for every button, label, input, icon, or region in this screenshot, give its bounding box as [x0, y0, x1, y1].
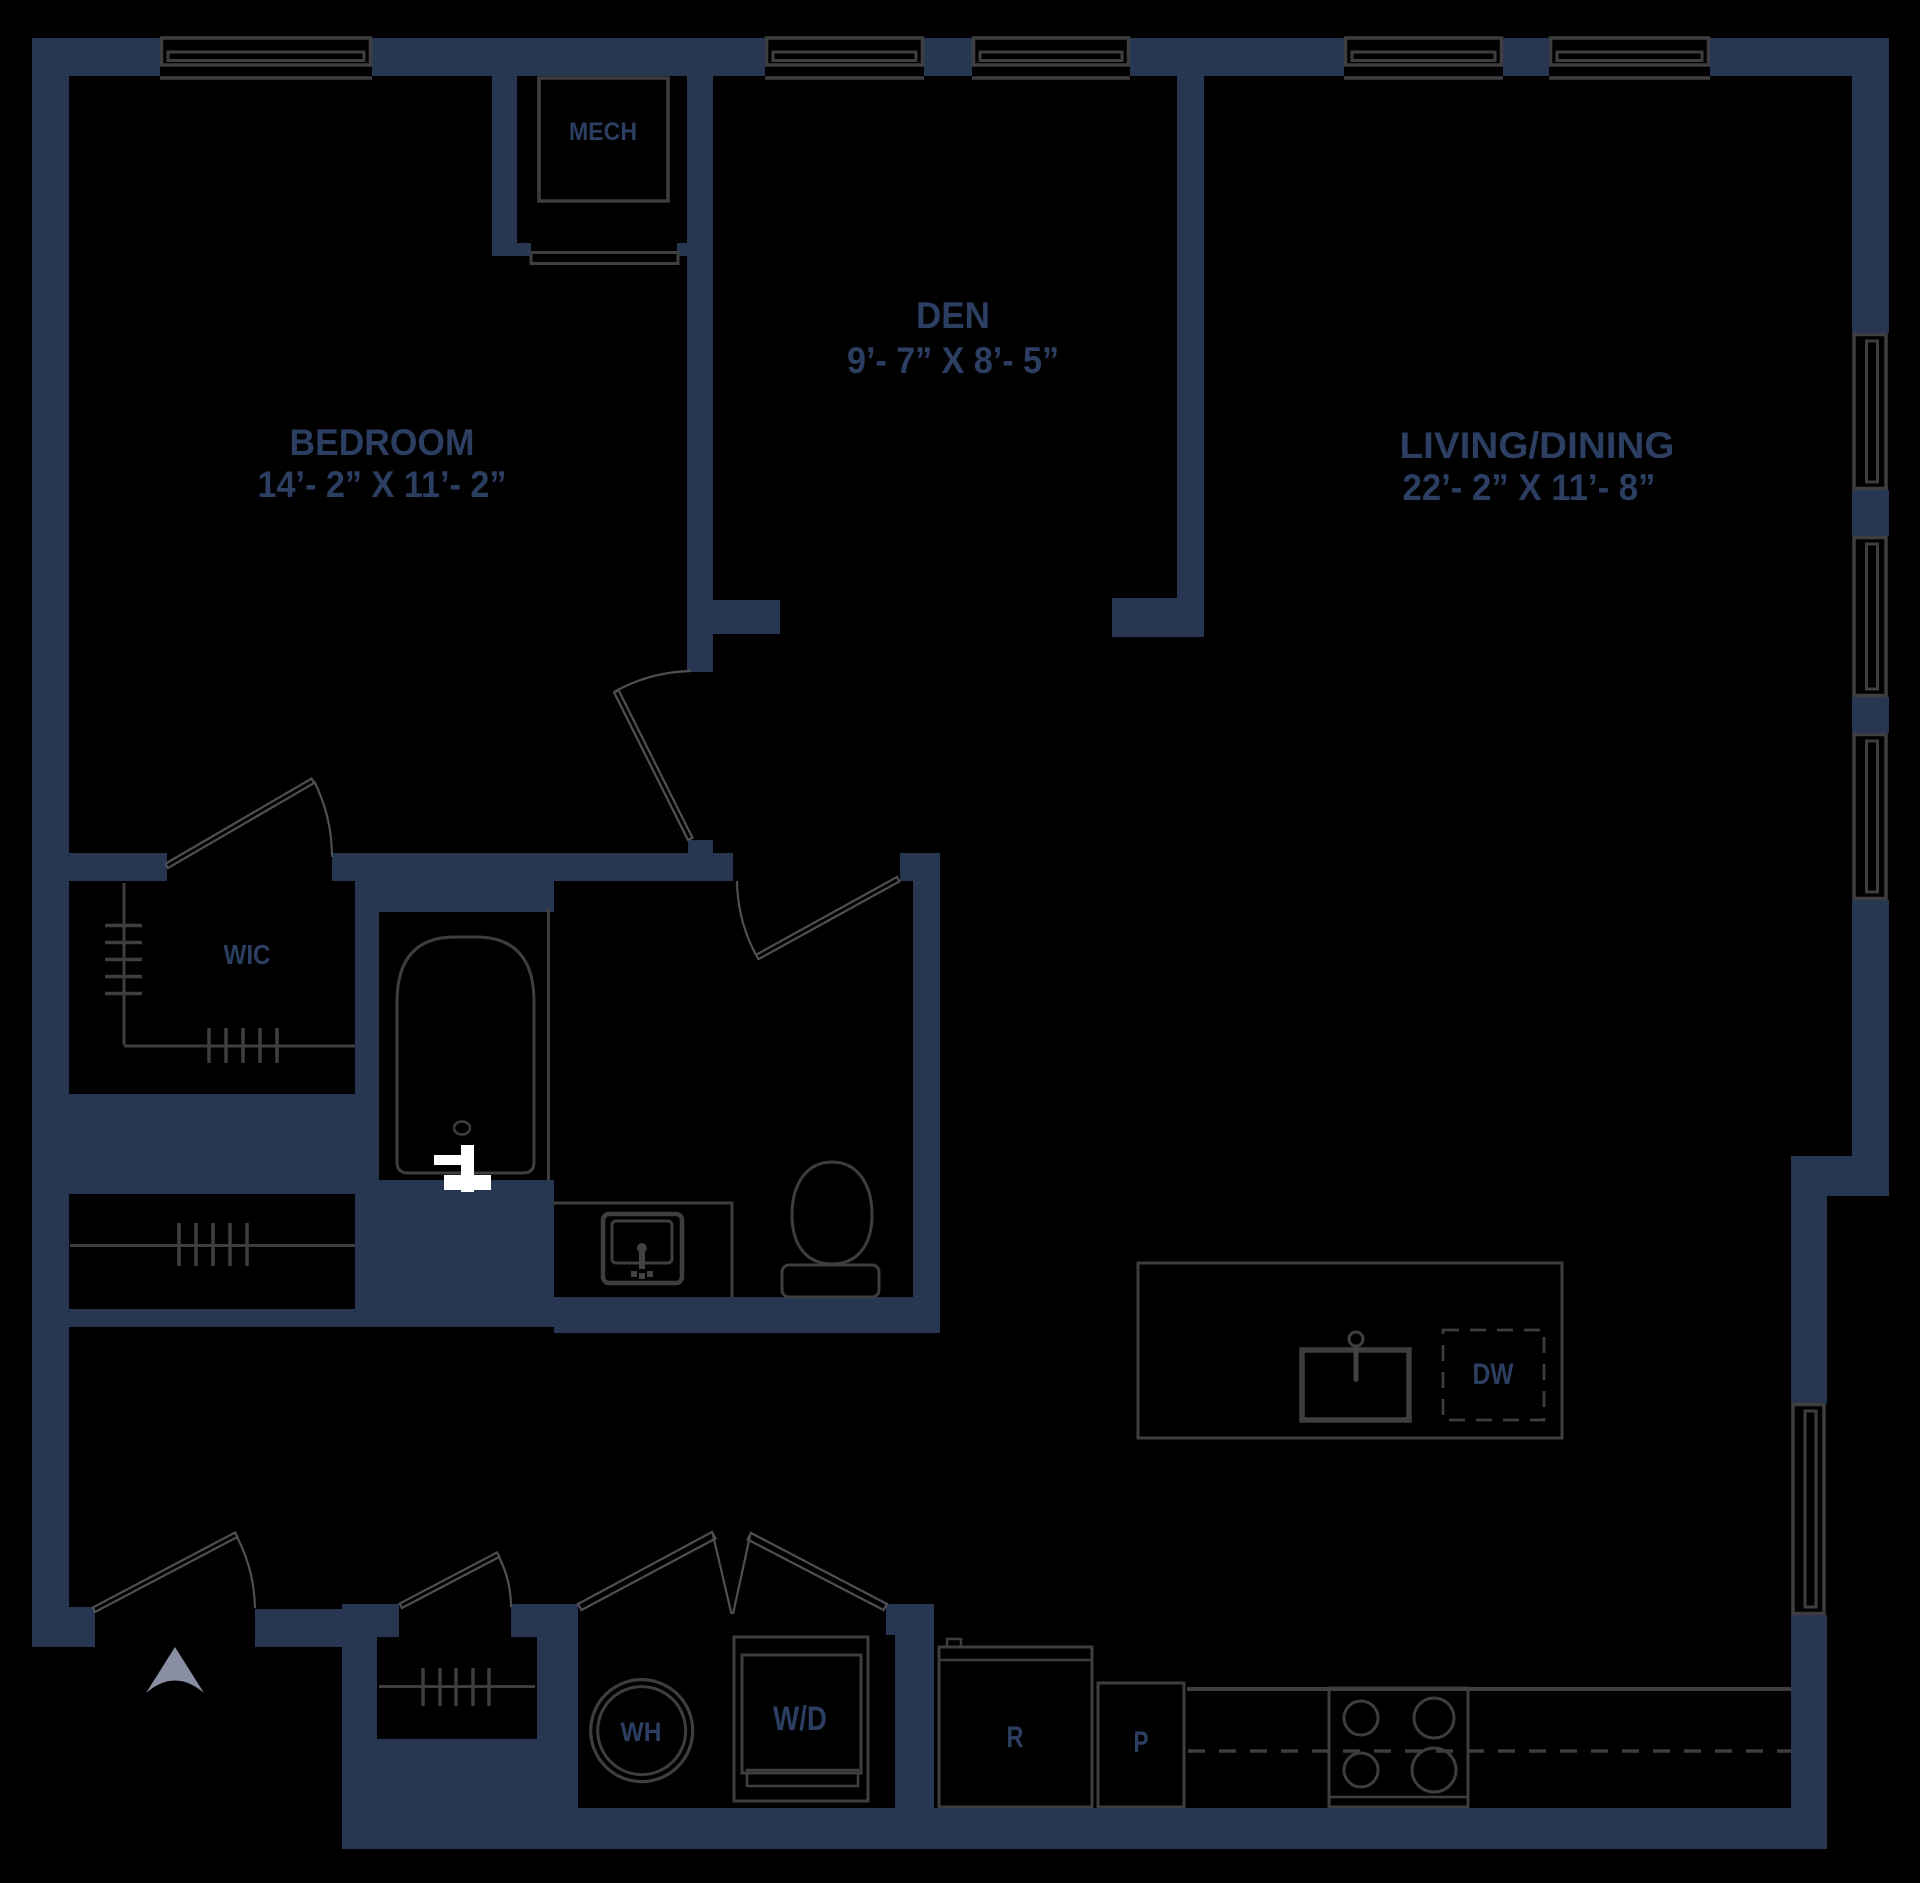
svg-text:MECH: MECH	[569, 118, 637, 146]
svg-text:WH: WH	[621, 1717, 662, 1747]
svg-text:14’- 2” X 11’- 2”: 14’- 2” X 11’- 2”	[258, 464, 507, 505]
svg-text:P: P	[1134, 1726, 1149, 1759]
svg-text:BEDROOM: BEDROOM	[290, 422, 475, 463]
svg-text:DEN: DEN	[916, 295, 990, 336]
svg-text:W/D: W/D	[773, 1700, 827, 1738]
svg-text:R: R	[1007, 1721, 1024, 1754]
svg-text:WIC: WIC	[224, 939, 271, 970]
svg-text:DW: DW	[1473, 1358, 1515, 1391]
svg-text:LIVING/DINING: LIVING/DINING	[1400, 425, 1675, 466]
svg-text:22’- 2” X 11’- 8”: 22’- 2” X 11’- 8”	[1403, 467, 1656, 508]
svg-text:9’- 7” X 8’- 5”: 9’- 7” X 8’- 5”	[847, 340, 1059, 381]
